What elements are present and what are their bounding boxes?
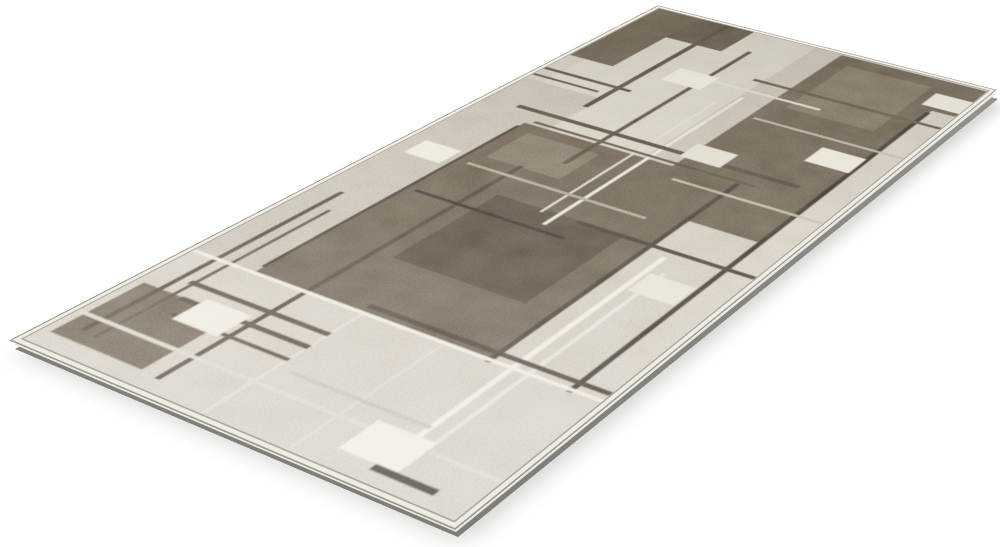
rug-photo <box>12 6 995 528</box>
rug-field <box>23 8 988 520</box>
product-photo-stage <box>0 0 1000 547</box>
rug-pattern-layer <box>23 8 988 520</box>
